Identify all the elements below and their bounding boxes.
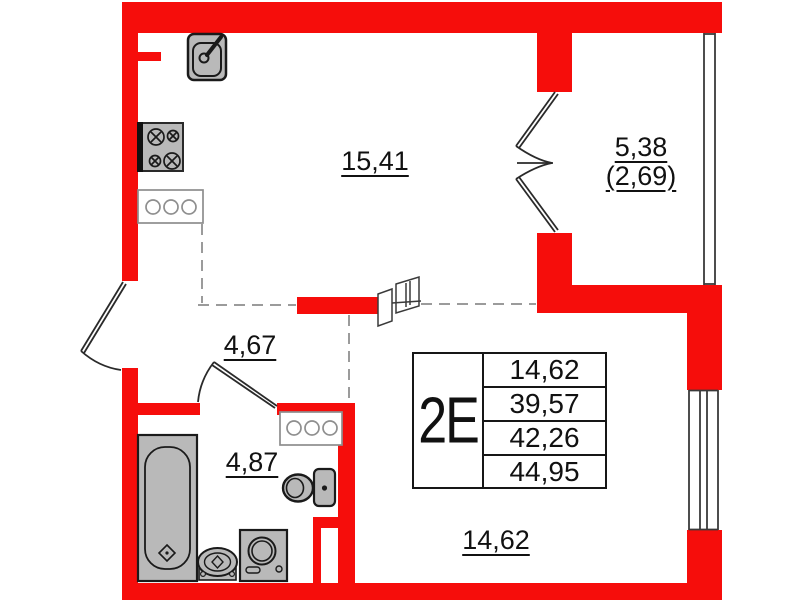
wall-corner-stub [138, 52, 161, 61]
balcony-door-icon [516, 92, 558, 232]
wall-bath-left [138, 403, 200, 415]
label-balcony-full-area: 5,38 [596, 134, 686, 161]
wall-right-lower [687, 530, 722, 600]
label-bedroom-area: 14,62 [448, 527, 544, 554]
kitchen-sink-icon [188, 34, 226, 80]
unit-area-row: 14,62 [484, 354, 605, 388]
walls [122, 2, 722, 600]
entrance-door-icon [81, 282, 126, 370]
wall-right-upper [687, 313, 722, 390]
wall-balcony-band [537, 285, 722, 313]
kitchen-counter-icon [138, 190, 203, 223]
unit-info-table: 2E 14,62 39,57 42,26 44,95 [412, 352, 607, 489]
label-hallway-area: 4,67 [205, 332, 295, 359]
wall-interior-sliding [297, 297, 378, 314]
unit-area-row: 42,26 [484, 422, 605, 456]
unit-area-row: 44,95 [484, 456, 605, 488]
wall-duct-stub-h [313, 517, 338, 528]
wall-left-upper [122, 33, 138, 281]
unit-area-row: 39,57 [484, 388, 605, 422]
floor-plan-canvas: 15,41 5,38 (2,69) 4,67 4,87 14,62 2E 14,… [0, 0, 800, 600]
floor-plan-svg [0, 0, 800, 600]
wall-left-lower [122, 368, 138, 600]
sliding-door-icon [378, 277, 421, 326]
stove-icon [137, 122, 183, 172]
bathroom-door-icon [198, 362, 277, 408]
washbasin-icon [198, 548, 237, 580]
bathtub-icon [138, 435, 197, 581]
wall-balcony-top-stub [537, 33, 572, 92]
label-living-area: 15,41 [330, 148, 420, 175]
wall-bottom [122, 583, 722, 600]
bathroom-counter-icon [280, 412, 342, 445]
washing-machine-icon [240, 530, 287, 581]
balcony-window-icon [704, 33, 715, 285]
unit-type-label: 2E [418, 383, 478, 458]
wall-duct-stub-v [313, 528, 321, 583]
unit-areas-column: 14,62 39,57 42,26 44,95 [484, 354, 605, 487]
wall-top [122, 2, 722, 33]
window-icon [689, 390, 718, 530]
label-balcony-counted-area: (2,69) [589, 163, 693, 190]
label-bathroom-area: 4,87 [207, 449, 297, 476]
unit-type-cell: 2E [414, 354, 484, 487]
